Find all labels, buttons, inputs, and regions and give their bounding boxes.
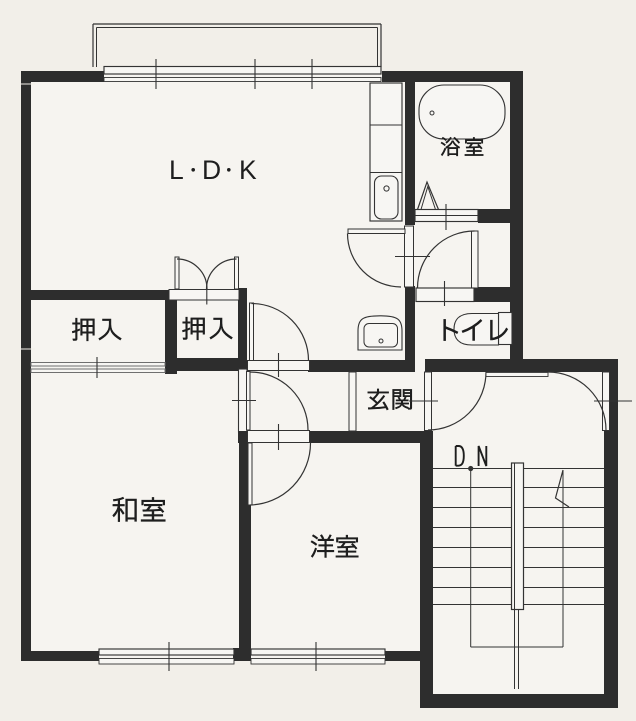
svg-text:L: L	[169, 155, 184, 185]
svg-text:D: D	[202, 155, 221, 185]
svg-text:K: K	[239, 155, 257, 185]
